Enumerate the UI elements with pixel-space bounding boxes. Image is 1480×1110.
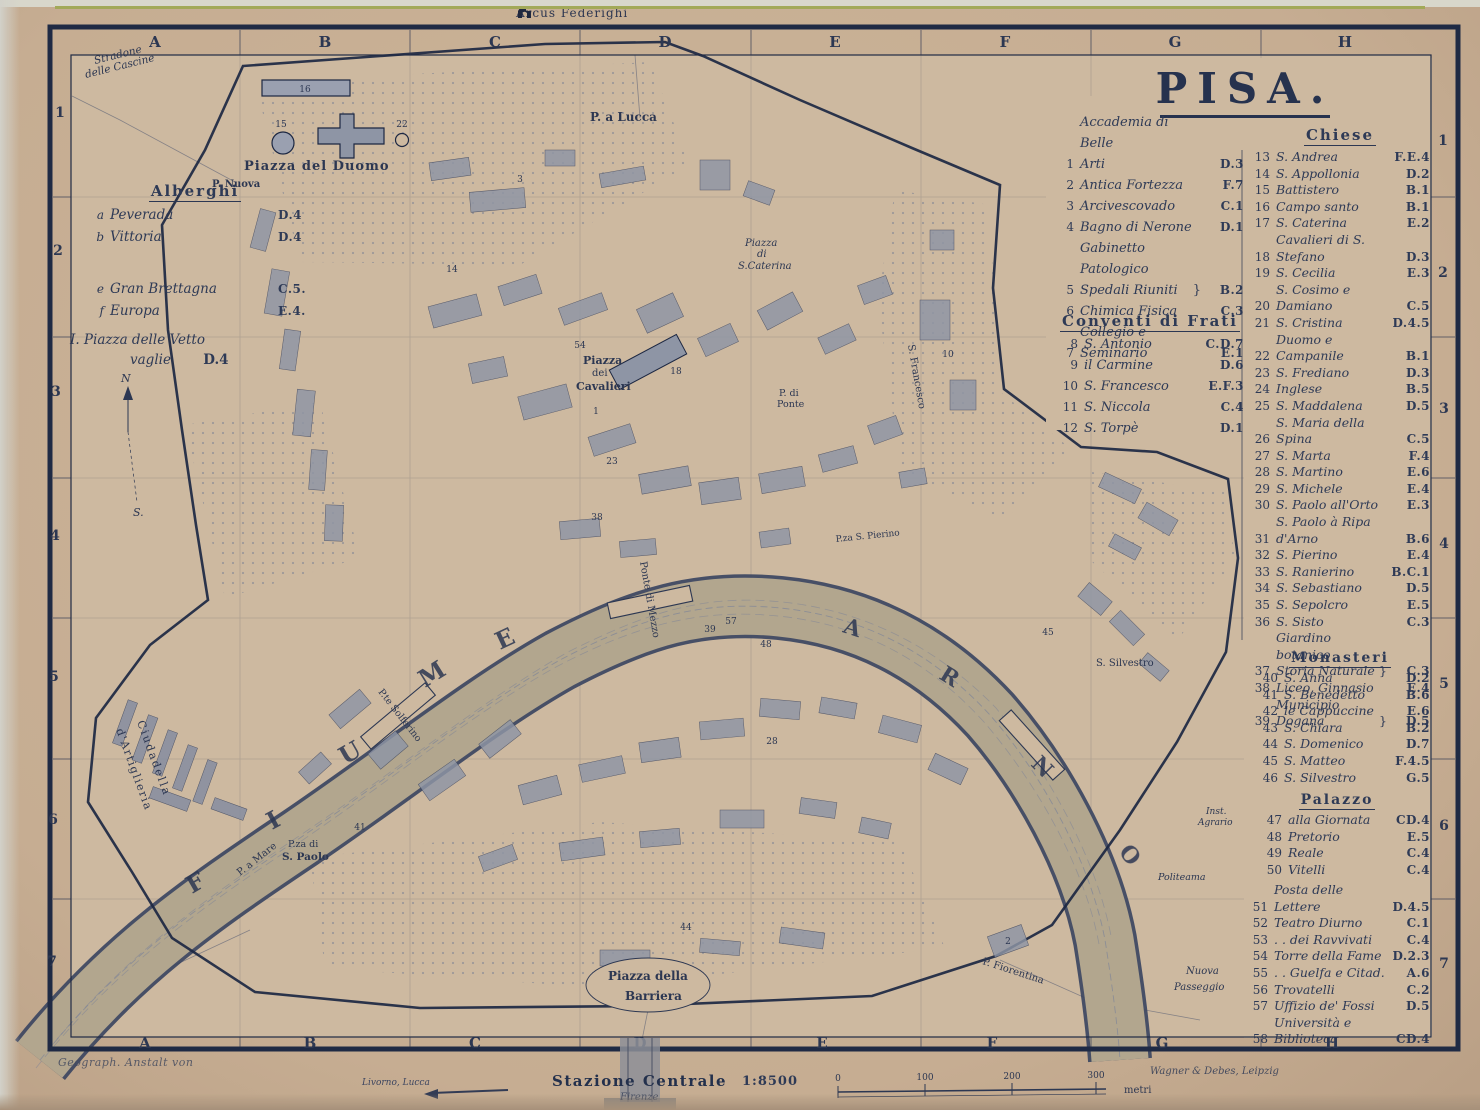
legend-row-name: Posta delle Lettere <box>1274 882 1388 915</box>
legend-row-gridref: E.3 <box>1388 497 1430 514</box>
legend-row-gridref: C.4 <box>1388 932 1430 949</box>
svg-text:3: 3 <box>51 384 61 400</box>
legend-row-gridref: B.1 <box>1388 182 1430 199</box>
hotel-row: a Peverada D.4 <box>88 204 318 226</box>
legend-row-gridref: C.1 <box>1202 196 1244 217</box>
legend-row-name: Università e Biblioteca <box>1274 1015 1388 1048</box>
legend-row-number: 8 <box>1056 334 1084 355</box>
legend-row-number: 21 <box>1248 315 1276 332</box>
legend-row-gridref: E.6 <box>1388 703 1430 720</box>
svg-text:F: F <box>1000 33 1011 51</box>
legend-row-number: 29 <box>1248 481 1276 498</box>
legend-row-number: 48 <box>1260 829 1288 846</box>
legend-row: 19 S. Cecilia E.3 <box>1248 265 1430 282</box>
svg-text:4: 4 <box>1439 536 1449 552</box>
legend-row-number: 1 <box>1052 154 1080 175</box>
legend-row-gridref: E.F.3 <box>1202 376 1244 397</box>
legend-row: 54 Torre della Fame D.2.3 <box>1246 948 1430 965</box>
legend-row: 14 S. Appollonia D.2 <box>1248 166 1430 183</box>
legend-row-name: Arcivescovado <box>1080 196 1200 217</box>
legend-row-gridref: D.3 <box>1202 154 1244 175</box>
legend-row: 26 S. Maria della Spina C.5 <box>1248 415 1430 448</box>
legend-row-name: S. Francesco <box>1084 376 1202 397</box>
legend-row-gridref: D.2 <box>1388 166 1430 183</box>
legend-row-name: Bagno di Nerone <box>1080 217 1200 238</box>
legend-row-number: 5 <box>1052 280 1080 301</box>
legend-row-name: S. Torpè <box>1084 418 1202 439</box>
legend-row-gridref: F.7 <box>1202 175 1244 196</box>
svg-text:Cavalieri: Cavalieri <box>576 380 631 393</box>
legend-row: 30 S. Paolo all'Orto E.3 <box>1248 497 1430 514</box>
legend-row-gridref: C.4 <box>1202 397 1244 418</box>
legend-row-gridref: C.4 <box>1388 862 1430 879</box>
hotel-row: f Europa E.4. <box>88 300 318 322</box>
legend-row-number: 22 <box>1248 348 1276 365</box>
legend-row-number: 30 <box>1248 497 1276 514</box>
svg-text:3: 3 <box>1439 401 1449 417</box>
svg-text:E: E <box>829 33 840 51</box>
legend-row-number: 33 <box>1248 564 1276 581</box>
svg-text:D: D <box>658 33 671 51</box>
svg-text:G: G <box>1156 1034 1169 1052</box>
legend-row-name: S. Anna <box>1284 670 1388 687</box>
legend-row-number: 16 <box>1248 199 1276 216</box>
svg-text:Piazza: Piazza <box>744 238 777 249</box>
hotel-letter: a <box>88 204 110 226</box>
svg-text:5: 5 <box>1439 676 1449 692</box>
svg-text:1: 1 <box>593 407 599 417</box>
legend-row-name: Vitelli <box>1288 862 1388 879</box>
svg-text:G: G <box>1169 33 1182 51</box>
legend-row-gridref: D.5 <box>1388 398 1430 415</box>
legend-row-name: S. Martino <box>1276 464 1386 481</box>
svg-text:Politeama: Politeama <box>1157 872 1206 883</box>
hotel-name: Peverada <box>110 204 264 226</box>
svg-text:54: 54 <box>574 341 586 351</box>
legend-row-name: Torre della Fame <box>1274 948 1388 965</box>
legend-row: 52 Teatro Diurno C.1 <box>1246 915 1430 932</box>
legend-row-gridref: CD.4 <box>1388 812 1430 829</box>
legend-row: 5 Gabinetto Patologico Spedali Riuniti }… <box>1052 238 1244 301</box>
legend-row: 28 S. Martino E.6 <box>1248 464 1430 481</box>
legend-row-number: 19 <box>1248 265 1276 282</box>
alberghi-list-ef: e Gran Brettagna C.5. f Europa E.4. <box>88 278 318 322</box>
legend-row-number: 53 <box>1246 932 1274 949</box>
legend-row: 1 Accademia di Belle Arti D.3 <box>1052 112 1244 175</box>
legend-row: 21 S. Cristina D.4.5 <box>1248 315 1430 332</box>
svg-text:3: 3 <box>517 175 523 185</box>
legend-row-name: S. Maria della Spina <box>1276 415 1386 448</box>
legend-row-number: 11 <box>1056 397 1084 418</box>
legend-row: 20 S. Cosimo e Damiano C.5 <box>1248 282 1430 315</box>
legend-row-name: S. Domenico <box>1284 736 1388 753</box>
legend-row-number: 3 <box>1052 196 1080 217</box>
legend-row-number: 58 <box>1246 1031 1274 1048</box>
svg-text:Piazza del Duomo: Piazza del Duomo <box>244 159 390 174</box>
hotel-name: Vittoria <box>110 226 264 248</box>
hotel-row: e Gran Brettagna C.5. <box>88 278 318 300</box>
legend-row-gridref: C.1 <box>1388 915 1430 932</box>
svg-text:14: 14 <box>446 265 458 275</box>
legend-row-name: S. Caterina <box>1276 215 1386 232</box>
legend-row-gridref: B.2 <box>1388 720 1430 737</box>
legend-row-gridref: B.6 <box>1388 531 1430 548</box>
legend-row-name: S. Appollonia <box>1276 166 1386 183</box>
svg-text:48: 48 <box>760 640 772 650</box>
legend-row-gridref: F.4 <box>1388 448 1430 465</box>
credit-right: Wagner & Debes, Leipzig <box>1150 1066 1279 1077</box>
note-gridref: D.4 <box>175 352 228 368</box>
legend-row: 18 Cavalieri di S. Stefano D.3 <box>1248 232 1430 265</box>
legend-row-gridref: D.7 <box>1388 736 1430 753</box>
chiese-header: Chiese <box>1255 126 1425 146</box>
hotel-name: Gran Brettagna <box>110 278 264 300</box>
legend-monasteri: 40 S. Anna D.2 41 S. Benedetto B.6 42 le… <box>1256 670 1430 786</box>
alberghi-list-ab: a Peverada D.4 b Vittoria D.4 <box>88 204 318 248</box>
svg-text:38: 38 <box>591 513 603 523</box>
legend-row-name: S. Chiara <box>1284 720 1388 737</box>
svg-text:S. Silvestro: S. Silvestro <box>1096 658 1154 669</box>
legend-row: 11 S. Niccola C.4 <box>1056 397 1244 418</box>
barriera-oval <box>586 958 710 1012</box>
legend-row-number: 27 <box>1248 448 1276 465</box>
legend-row: 42 le Cappuccine E.6 <box>1256 703 1430 720</box>
legend-row: 29 S. Michele E.4 <box>1248 481 1430 498</box>
legend-row-gridref: E.6 <box>1388 464 1430 481</box>
legend-row-gridref: C.5 <box>1388 431 1430 448</box>
legend-row-gridref: C.2 <box>1388 982 1430 999</box>
legend-row-number: 52 <box>1246 915 1274 932</box>
legend-row-number: 9 <box>1056 355 1084 376</box>
legend-row: 3 Arcivescovado C.1 <box>1052 196 1244 217</box>
legend-row-name: Gabinetto Patologico Spedali Riuniti <box>1080 238 1192 301</box>
svg-text:18: 18 <box>670 367 682 377</box>
hotel-gridref: D.4 <box>264 226 318 248</box>
hotel-gridref: E.4. <box>264 300 318 322</box>
palazzo-header: Palazzo <box>1262 792 1412 810</box>
legend-row: 27 S. Marta F.4 <box>1248 448 1430 465</box>
legend-row-number: 17 <box>1248 215 1276 232</box>
svg-text:dei: dei <box>592 368 608 379</box>
legend-row-number: 43 <box>1256 720 1284 737</box>
svg-text:1: 1 <box>1438 133 1448 149</box>
svg-text:28: 28 <box>766 737 778 747</box>
legend-row-gridref: B.1 <box>1388 348 1430 365</box>
legend-row-name: S. Cecilia <box>1276 265 1386 282</box>
svg-text:P. a Lucca: P. a Lucca <box>590 110 657 124</box>
legend-row: 12 S. Torpè D.1 <box>1056 418 1244 439</box>
legend-row-gridref: A.6 <box>1388 965 1430 982</box>
legend-row-gridref: E.5 <box>1388 829 1430 846</box>
legend-row-gridref: D.2.3 <box>1388 948 1430 965</box>
legend-row-gridref: D.1 <box>1202 418 1244 439</box>
legend-row-gridref: E.5 <box>1388 597 1430 614</box>
legend-row-gridref: D.6 <box>1202 355 1244 376</box>
legend-row: 55 . . Guelfa e Citad. A.6 <box>1246 965 1430 982</box>
legend-row: 45 S. Matteo F.4.5 <box>1256 753 1430 770</box>
legend-row-number: 15 <box>1248 182 1276 199</box>
legend-row-number: 55 <box>1246 965 1274 982</box>
legend-row-number: 44 <box>1256 736 1284 753</box>
svg-text:S.: S. <box>133 506 144 519</box>
legend-row: 56 Trovatelli C.2 <box>1246 982 1430 999</box>
svg-text:B: B <box>319 33 332 51</box>
svg-text:S.Caterina: S.Caterina <box>738 261 792 272</box>
hotel-gridref: C.5. <box>264 278 318 300</box>
legend-row: 58 Università e Biblioteca CD.4 <box>1246 1015 1430 1048</box>
note-line2: vaglie <box>130 352 171 368</box>
campanile <box>396 134 409 147</box>
legend-row-gridref: D.5 <box>1388 998 1430 1015</box>
svg-text:C: C <box>489 33 501 51</box>
legend-row: 57 Uffizio de' Fossi D.5 <box>1246 998 1430 1015</box>
battistero <box>272 132 294 154</box>
svg-text:1: 1 <box>55 105 65 121</box>
svg-text:2: 2 <box>1438 265 1448 281</box>
legend-row: 44 S. Domenico D.7 <box>1256 736 1430 753</box>
legend-row-gridref: D.2 <box>1388 670 1430 687</box>
monasteri-header: Monasteri <box>1260 650 1420 668</box>
svg-text:B: B <box>304 1034 317 1052</box>
svg-text:6: 6 <box>1439 818 1449 834</box>
legend-row: 10 S. Francesco E.F.3 <box>1056 376 1244 397</box>
svg-text:45: 45 <box>1042 628 1054 638</box>
svg-text:E: E <box>816 1034 827 1052</box>
legend-row-name: S. Marta <box>1276 448 1386 465</box>
legend-row-number: 2 <box>1052 175 1080 196</box>
legend-row: 53 . . dei Ravvivati C.4 <box>1246 932 1430 949</box>
svg-text:Passeggio: Passeggio <box>1173 982 1224 993</box>
legend-row-gridref: E.3 <box>1388 265 1430 282</box>
legend-row-name: S. Paolo à Ripa d'Arno <box>1276 514 1386 547</box>
legend-row: 4 Bagno di Nerone D.1 <box>1052 217 1244 238</box>
svg-text:22: 22 <box>396 120 407 130</box>
legend-row: 16 Campo santo B.1 <box>1248 199 1430 216</box>
legend-row-name: Cavalieri di S. Stefano <box>1276 232 1386 265</box>
svg-text:15: 15 <box>275 120 287 130</box>
legend-row-name: S. Matteo <box>1284 753 1388 770</box>
svg-text:S. Paolo: S. Paolo <box>282 851 329 863</box>
hotel-letter: e <box>88 278 110 300</box>
svg-text:A: A <box>148 33 161 51</box>
grid-numbers-right: 12 34 56 7 <box>1438 133 1449 972</box>
legend-row-name: S. Cristina <box>1276 315 1386 332</box>
hotel-letter: b <box>88 226 110 248</box>
svg-text:Barriera: Barriera <box>625 989 682 1003</box>
legend-row: 24 Inglese B.5 <box>1248 381 1430 398</box>
legend-row-number: 57 <box>1246 998 1274 1015</box>
legend-row: 34 S. Sebastiano D.5 <box>1248 580 1430 597</box>
legend-row-number: 47 <box>1260 812 1288 829</box>
legend-row-gridref: D.1 <box>1202 217 1244 238</box>
legend-row-name: S. Benedetto <box>1284 687 1388 704</box>
legend-row-name: Teatro Diurno <box>1274 915 1388 932</box>
svg-text:2: 2 <box>53 243 63 259</box>
svg-text:16: 16 <box>299 85 311 95</box>
legend-row-number: 42 <box>1256 703 1284 720</box>
svg-text:Piazza della: Piazza della <box>608 969 688 983</box>
legend-row-name: alla Giornata <box>1288 812 1388 829</box>
legend-row-number: 34 <box>1248 580 1276 597</box>
legend-row-name: Accademia di Belle Arti <box>1080 112 1200 175</box>
legend-row-name: Inglese <box>1276 381 1386 398</box>
legend-row-number: 35 <box>1248 597 1276 614</box>
destination-label: Livorno, Lucca <box>362 1078 430 1088</box>
legend-row-name: . . Guelfa e Citad. <box>1274 965 1388 982</box>
svg-text:Inst.: Inst. <box>1205 807 1227 817</box>
svg-text:200: 200 <box>1003 1072 1020 1082</box>
legend-row-gridref: B.C.1 <box>1388 564 1430 581</box>
legend-row-name: S. Silvestro <box>1284 770 1388 787</box>
legend-row-gridref: D.5 <box>1388 580 1430 597</box>
vettovaglie-note: I. Piazza delle Vetto vaglie D.4 <box>70 330 320 370</box>
legend-row-gridref: F.E.4 <box>1388 149 1430 166</box>
svg-text:P.za di: P.za di <box>288 839 318 850</box>
photo-edge-bottom <box>0 1094 1480 1110</box>
scale-ratio: 1:8500 <box>742 1074 798 1089</box>
svg-text:0: 0 <box>835 1074 841 1084</box>
svg-text:A: A <box>138 1034 151 1052</box>
legend-varie: 51 Posta delle Lettere D.4.5 52 Teatro D… <box>1246 882 1430 1048</box>
svg-text:5: 5 <box>49 669 59 685</box>
legend-row: 17 S. Caterina E.2 <box>1248 215 1430 232</box>
legend-row-number: 24 <box>1248 381 1276 398</box>
svg-text:7: 7 <box>1439 956 1449 972</box>
legend-row-gridref: D.4.5 <box>1388 315 1430 332</box>
svg-text:H: H <box>1338 33 1352 51</box>
svg-text:2: 2 <box>1005 937 1011 947</box>
hotel-letter: f <box>88 300 110 322</box>
svg-text:57: 57 <box>725 617 737 627</box>
legend-row-name: Battistero <box>1276 182 1386 199</box>
legend-conventi: 8 S. Antonio C.D.7 9 il Carmine D.6 10 S… <box>1056 334 1244 439</box>
legend-row: 2 Antica Fortezza F.7 <box>1052 175 1244 196</box>
legend-row-number: 54 <box>1246 948 1274 965</box>
legend-row-name: S. Sebastiano <box>1276 580 1386 597</box>
legend-row: 41 S. Benedetto B.6 <box>1256 687 1430 704</box>
legend-row-gridref: E.4 <box>1388 547 1430 564</box>
legend-row-gridref: D.3 <box>1388 365 1430 382</box>
legend-row-name: il Carmine <box>1084 355 1202 376</box>
legend-row-name: S. Sepolcro <box>1276 597 1386 614</box>
svg-text:Agrario: Agrario <box>1197 818 1233 828</box>
legend-row-name: S. Andrea <box>1276 149 1386 166</box>
legend-row-name: S. Maddalena <box>1276 398 1386 415</box>
svg-text:7: 7 <box>47 954 57 970</box>
legend-row-gridref: D.4.5 <box>1388 899 1430 916</box>
legend-row-number: 51 <box>1246 899 1274 916</box>
legend-row-gridref: C.5 <box>1388 298 1430 315</box>
svg-text:Ponte: Ponte <box>777 399 805 410</box>
legend-row-name: S. Niccola <box>1084 397 1202 418</box>
legend-row: 33 S. Ranierino B.C.1 <box>1248 564 1430 581</box>
legend-row-name: S. Pierino <box>1276 547 1386 564</box>
legend-row: 23 S. Frediano D.3 <box>1248 365 1430 382</box>
svg-text:6: 6 <box>48 812 58 828</box>
legend-row-number: 26 <box>1248 431 1276 448</box>
legend-row-number: 31 <box>1248 531 1276 548</box>
legend-row: 40 S. Anna D.2 <box>1256 670 1430 687</box>
alberghi-header: Alberghi <box>95 182 295 202</box>
legend-row-name: S. Antonio <box>1084 334 1202 355</box>
legend-row-gridref: B.5 <box>1388 381 1430 398</box>
legend-row: 43 S. Chiara B.2 <box>1256 720 1430 737</box>
legend-row-gridref: C.D.7 <box>1202 334 1244 355</box>
legend-row-number: 56 <box>1246 982 1274 999</box>
legend-row-number: 25 <box>1248 398 1276 415</box>
svg-text:44: 44 <box>680 923 692 933</box>
svg-text:Piazza: Piazza <box>583 354 622 367</box>
legend-row-number: 14 <box>1248 166 1276 183</box>
hotel-gridref: D.4 <box>264 204 318 226</box>
legend-row-number: 18 <box>1248 249 1276 266</box>
legend-row-number: 41 <box>1256 687 1284 704</box>
legend-row-name: le Cappuccine <box>1284 703 1388 720</box>
legend-row-name: Antica Fortezza <box>1080 175 1200 196</box>
legend-row-gridref: B.2 <box>1202 280 1244 301</box>
legend-row: 13 S. Andrea F.E.4 <box>1248 149 1430 166</box>
legend-row: 47 alla Giornata CD.4 <box>1260 812 1430 829</box>
legend-row: 35 S. Sepolcro E.5 <box>1248 597 1430 614</box>
legend-row-gridref: F.4.5 <box>1388 753 1430 770</box>
map-title: PISA. <box>1140 64 1350 113</box>
svg-text:100: 100 <box>916 1073 933 1083</box>
legend-row-number: 50 <box>1260 862 1288 879</box>
legend-row: 25 S. Maddalena D.5 <box>1248 398 1430 415</box>
legend-row: 9 il Carmine D.6 <box>1056 355 1244 376</box>
grid-letters-top: AB CD EF GH <box>148 33 1352 51</box>
svg-text:N: N <box>120 372 131 385</box>
legend-row-number: 12 <box>1056 418 1084 439</box>
legend-row-name: Uffizio de' Fossi <box>1274 998 1388 1015</box>
legend-row-brace: } <box>1192 280 1202 301</box>
legend-row-number: 23 <box>1248 365 1276 382</box>
svg-text:23: 23 <box>606 457 618 467</box>
legend-row-name: Trovatelli <box>1274 982 1388 999</box>
page-edge-line <box>55 6 1425 9</box>
svg-text:Nuova: Nuova <box>1185 966 1219 977</box>
legend-palazzo: 47 alla Giornata CD.4 48 Pretorio E.5 49… <box>1260 812 1430 878</box>
legend-row: 32 S. Pierino E.4 <box>1248 547 1430 564</box>
legend-row-name: S. Sisto <box>1276 614 1386 631</box>
svg-text:4: 4 <box>50 528 60 544</box>
conventi-header: Conventi di Frati <box>1060 312 1240 332</box>
map-photo: AB CD EF GH AB CD EF GH 12 34 56 7 12 34… <box>0 0 1480 1110</box>
legend-row-name: Reale <box>1288 845 1388 862</box>
legend-row-gridref: B.1 <box>1388 199 1430 216</box>
legend-row-gridref: E.4 <box>1388 481 1430 498</box>
legend-row-gridref: E.2 <box>1388 215 1430 232</box>
legend-row-name: . . dei Ravvivati <box>1274 932 1388 949</box>
legend-row: 48 Pretorio E.5 <box>1260 829 1430 846</box>
legend-row-name: Pretorio <box>1288 829 1388 846</box>
legend-row-number: 45 <box>1256 753 1284 770</box>
legend-row-name: Campo santo <box>1276 199 1386 216</box>
credit-left: Geograph. Anstalt von <box>58 1056 193 1069</box>
legend-row-gridref: B.6 <box>1388 687 1430 704</box>
legend-row: 49 Reale C.4 <box>1260 845 1430 862</box>
legend-chiese: 13 S. Andrea F.E.4 14 S. Appollonia D.2 … <box>1248 149 1430 730</box>
legend-row-number: 28 <box>1248 464 1276 481</box>
legend-row: 50 Vitelli C.4 <box>1260 862 1430 879</box>
hotel-name: Europa <box>110 300 264 322</box>
legend-row-number: 49 <box>1260 845 1288 862</box>
legend-row-number: 20 <box>1248 298 1276 315</box>
legend-row-name: S. Paolo all'Orto <box>1276 497 1386 514</box>
legend-row: 8 S. Antonio C.D.7 <box>1056 334 1244 355</box>
svg-text:P. di: P. di <box>779 388 799 399</box>
legend-row: 46 S. Silvestro G.5 <box>1256 770 1430 787</box>
